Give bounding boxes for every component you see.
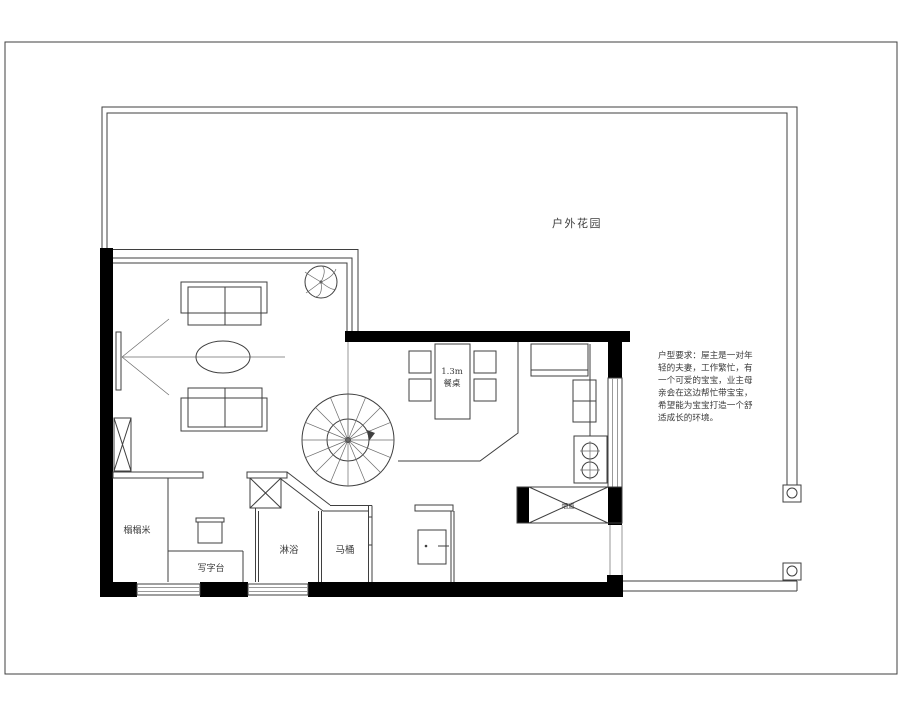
notes-text: 户型要求：屋主是一对年 轻的夫妻，工作繁忙，有 一个可爱的宝宝，业主母 亲会在这…: [658, 349, 753, 424]
toilet-room: [322, 506, 373, 583]
fridge: [531, 344, 588, 376]
stair-direction-arrow: [367, 430, 375, 441]
desk-chair: [196, 518, 224, 543]
note-line-4: 亲会在这边帮忙带宝宝，: [658, 387, 753, 399]
writing-desk-label: 写字台: [197, 562, 224, 574]
desk-shelf: [113, 472, 203, 478]
garden-label: 户外花园: [552, 216, 602, 230]
kitchen-right-pier-top: [608, 342, 622, 378]
stair-treads: [302, 394, 394, 486]
dining-chair: [409, 379, 431, 401]
sofa-bottom: [181, 388, 267, 431]
spiral-staircase: [302, 342, 394, 486]
dining-chair: [474, 351, 496, 373]
dining-table-label: 餐桌: [443, 378, 461, 389]
bottom-window-2: [248, 584, 308, 595]
washing-machine: [415, 505, 454, 582]
flue-pier-left: [517, 487, 529, 523]
top-wall: [345, 331, 630, 342]
floor-plan-drawing: 户外花园 1.3m 餐桌 榻榻米 写字台 淋浴 马桶 烟道 户型要求：屋主是一对…: [0, 0, 900, 720]
bottom-wall-seg1: [100, 582, 137, 597]
kitchen-right-pier-bottom: [608, 487, 622, 525]
bottom-window-1: [137, 584, 200, 595]
shower-label: 淋浴: [279, 544, 299, 556]
note-line-5: 希望能为宝宝打造一个舒: [658, 399, 753, 411]
sofa-top: [181, 282, 267, 325]
bathroom-column: [250, 478, 281, 508]
tatami-label: 榻榻米: [123, 524, 150, 536]
left-wall: [100, 248, 113, 597]
dining-chair: [409, 351, 431, 373]
dining-dim-label: 1.3m: [441, 367, 463, 377]
note-line-2: 轻的夫妻，工作繁忙，有: [658, 362, 753, 374]
sink-cabinet: [573, 380, 596, 422]
tv-sightlines: [122, 319, 285, 395]
note-line-6: 适成长的环境。: [658, 412, 718, 424]
toilet-label: 马桶: [335, 544, 354, 556]
fence-post-right: [783, 485, 801, 502]
column-shaft: [114, 418, 131, 471]
bathroom-shelf: [247, 472, 287, 478]
cooktop: [574, 436, 607, 483]
note-line-3: 一个可爱的宝宝，业主母: [658, 374, 753, 386]
tv: [116, 332, 121, 390]
bottom-right-corner: [607, 575, 623, 597]
flue-label: 烟道: [562, 501, 576, 510]
bottom-wall-seg3: [308, 582, 607, 597]
note-line-1: 户型要求：屋主是一对年: [658, 349, 753, 361]
plant-icon: [305, 266, 337, 298]
fence-post-bottom: [783, 563, 801, 580]
floor-plan-svg: 户外花园 1.3m 餐桌 榻榻米 写字台 淋浴 马桶 烟道 户型要求：屋主是一对…: [0, 0, 900, 720]
bottom-wall-seg2: [200, 582, 248, 597]
kitchen-side-opening: [610, 525, 622, 575]
exterior-walls: [100, 248, 630, 597]
dining-chair: [474, 379, 496, 401]
kitchen-window: [608, 378, 622, 487]
